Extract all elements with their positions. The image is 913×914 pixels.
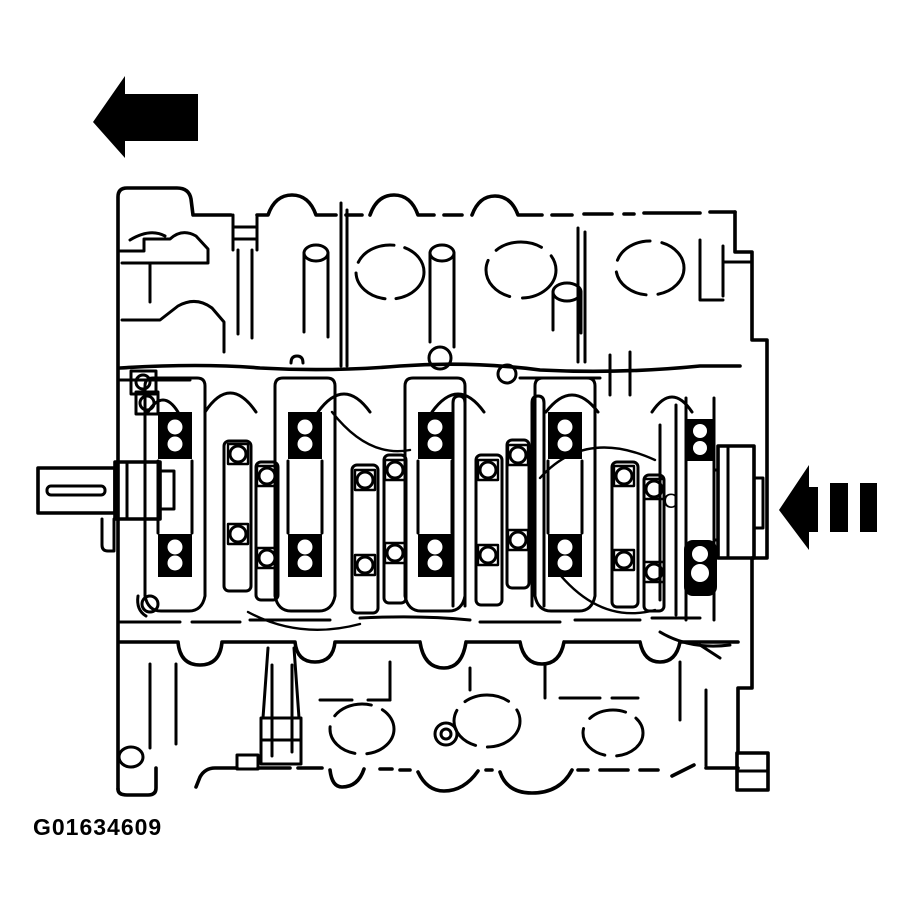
- arrow-left-solid-icon: [93, 76, 198, 158]
- figure-code-label: G01634609: [33, 814, 162, 841]
- crankshaft-assembly: C: [38, 378, 763, 630]
- engine-crankshaft-diagram: C G01634609: [0, 0, 913, 914]
- arrow-left-dashed-icon: [779, 465, 877, 550]
- rear-flange: C: [660, 398, 763, 620]
- main-bearing-web: [405, 378, 465, 611]
- rod-journal: [476, 440, 529, 605]
- rod-journal: [612, 462, 664, 611]
- crank-snout: [38, 462, 174, 551]
- rod-journal: [224, 441, 278, 600]
- crank-mark-label: C: [663, 490, 678, 513]
- rod-journal: [352, 455, 406, 613]
- lower-skirt-band: [120, 617, 738, 766]
- diagram-canvas: C: [0, 0, 913, 914]
- main-bearing-web: [275, 378, 335, 611]
- upper-cylinder-band: [120, 203, 752, 412]
